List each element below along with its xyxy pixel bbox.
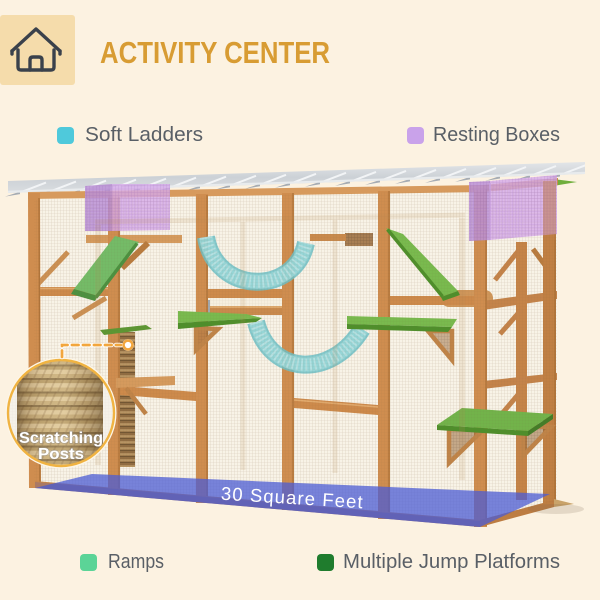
svg-text:Scratching: Scratching (19, 430, 103, 447)
svg-text:Resting Boxes: Resting Boxes (433, 124, 560, 146)
svg-text:Multiple Jump Platforms: Multiple Jump Platforms (343, 551, 560, 573)
svg-text:Ramps: Ramps (108, 551, 164, 573)
svg-text:ACTIVITY CENTER: ACTIVITY CENTER (100, 35, 330, 70)
svg-text:Posts: Posts (38, 446, 84, 463)
svg-text:Soft Ladders: Soft Ladders (85, 124, 203, 146)
